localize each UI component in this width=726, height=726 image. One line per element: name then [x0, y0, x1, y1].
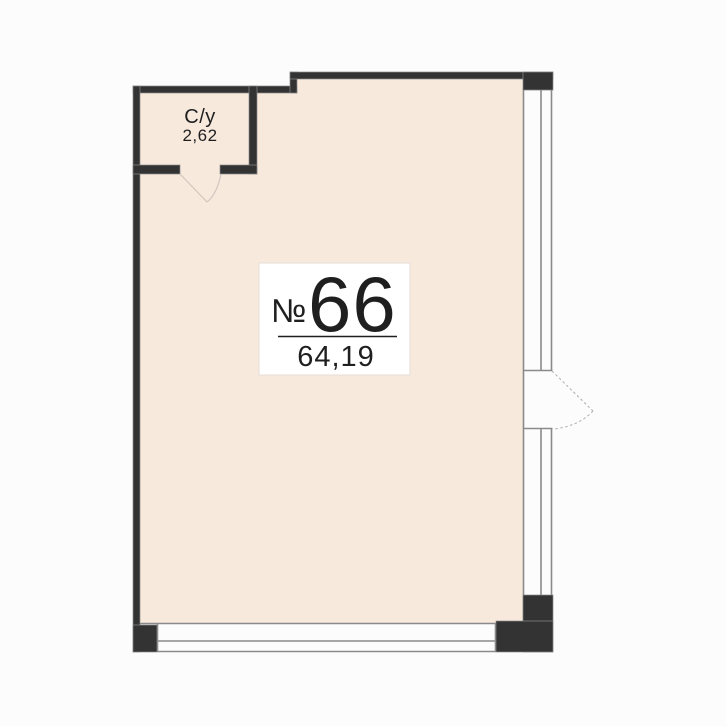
bathroom-wall-bottom-left [133, 165, 180, 174]
floor-plan: С/у 2,62 № 66 64,19 [0, 0, 726, 726]
bathroom-name: С/у [184, 106, 216, 128]
bathroom-label: С/у 2,62 [182, 106, 217, 145]
wall-top-main [290, 72, 553, 79]
wall-corner-top-right [523, 72, 553, 90]
bathroom-wall-bottom-right [220, 165, 257, 174]
wall-corner-bottom-right-horizontal [496, 621, 553, 652]
bathroom-wall-right [249, 86, 257, 174]
unit-number: 66 [308, 260, 397, 348]
wall-corner-bottom-left [133, 625, 157, 652]
unit-number-sign: № [271, 292, 306, 329]
wall-top-left [133, 86, 297, 93]
unit-label: № 66 64,19 [259, 260, 410, 375]
unit-area: 64,19 [297, 341, 375, 373]
bathroom-area: 2,62 [182, 126, 217, 145]
